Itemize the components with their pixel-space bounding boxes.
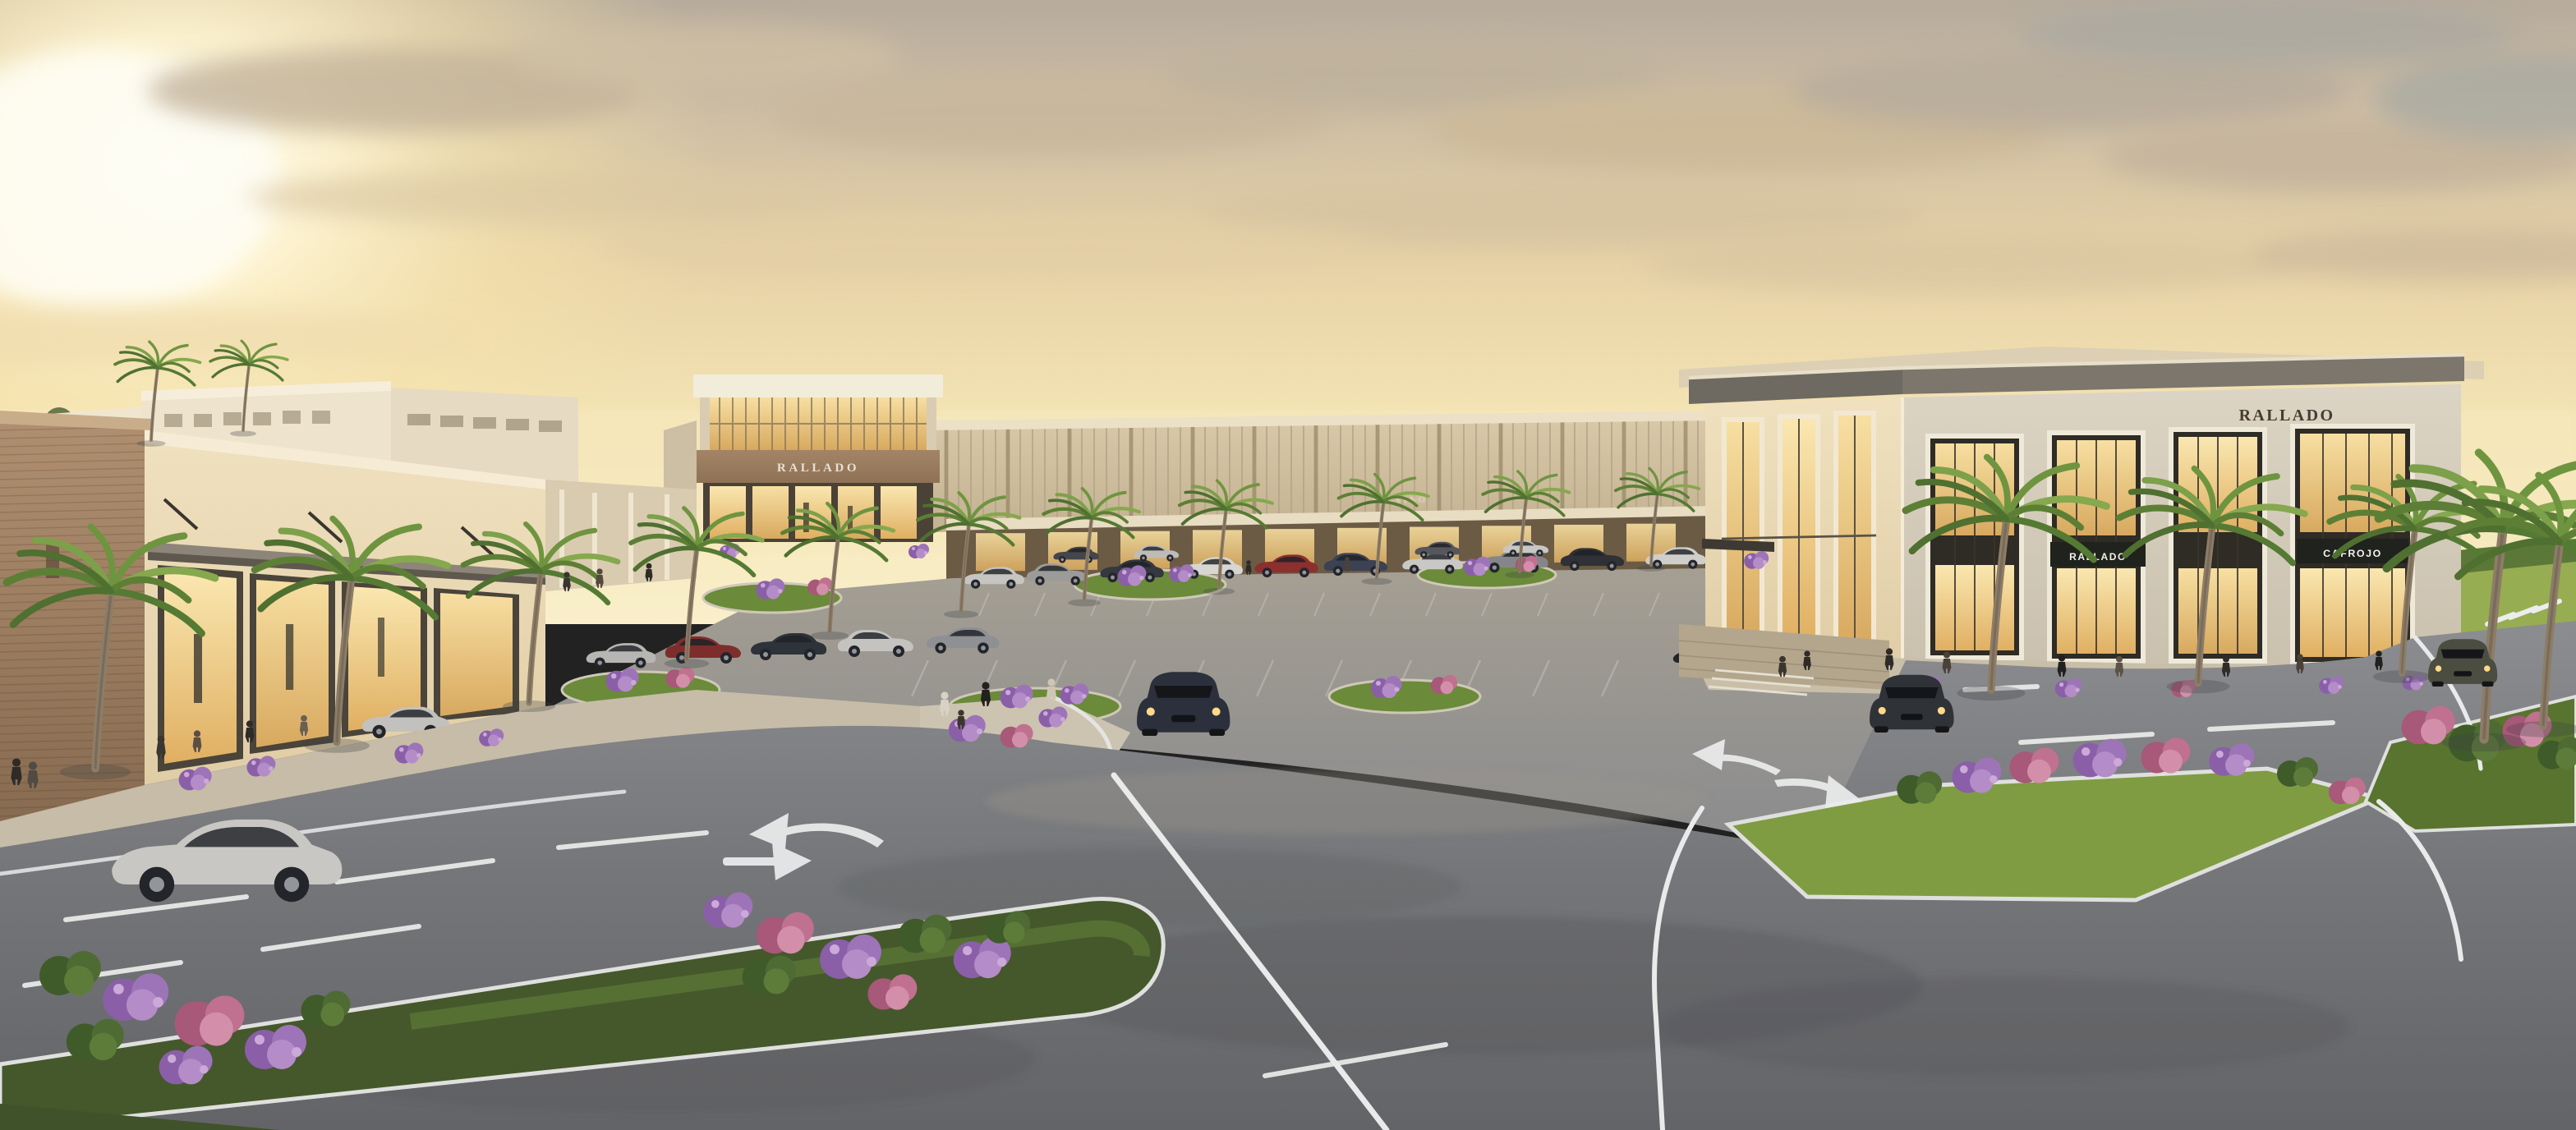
sign-rallado-plaza: RALLADO [777,462,859,475]
cloud [1643,233,2300,292]
sign-rallado-corner-top: RALLADO [2239,407,2335,425]
storefront-window [976,533,1025,571]
scene-canvas: SELVINO RALLADO [0,0,2576,1130]
cloud [2021,0,2514,66]
cloud [246,171,838,223]
atrium-column [927,397,936,453]
parked-car [586,643,656,668]
atrium-parapet [693,374,943,397]
cloud [509,25,904,90]
sign-cafrojo-storefront: CAFROJO [2323,548,2382,559]
atrium-column [700,397,710,453]
cloud [591,217,1380,276]
plaza-rendering: SELVINO RALLADO [0,0,2576,1130]
sign-rallado-storefront: RALLADO [2069,551,2127,563]
corner-left-windows [1722,411,1876,650]
